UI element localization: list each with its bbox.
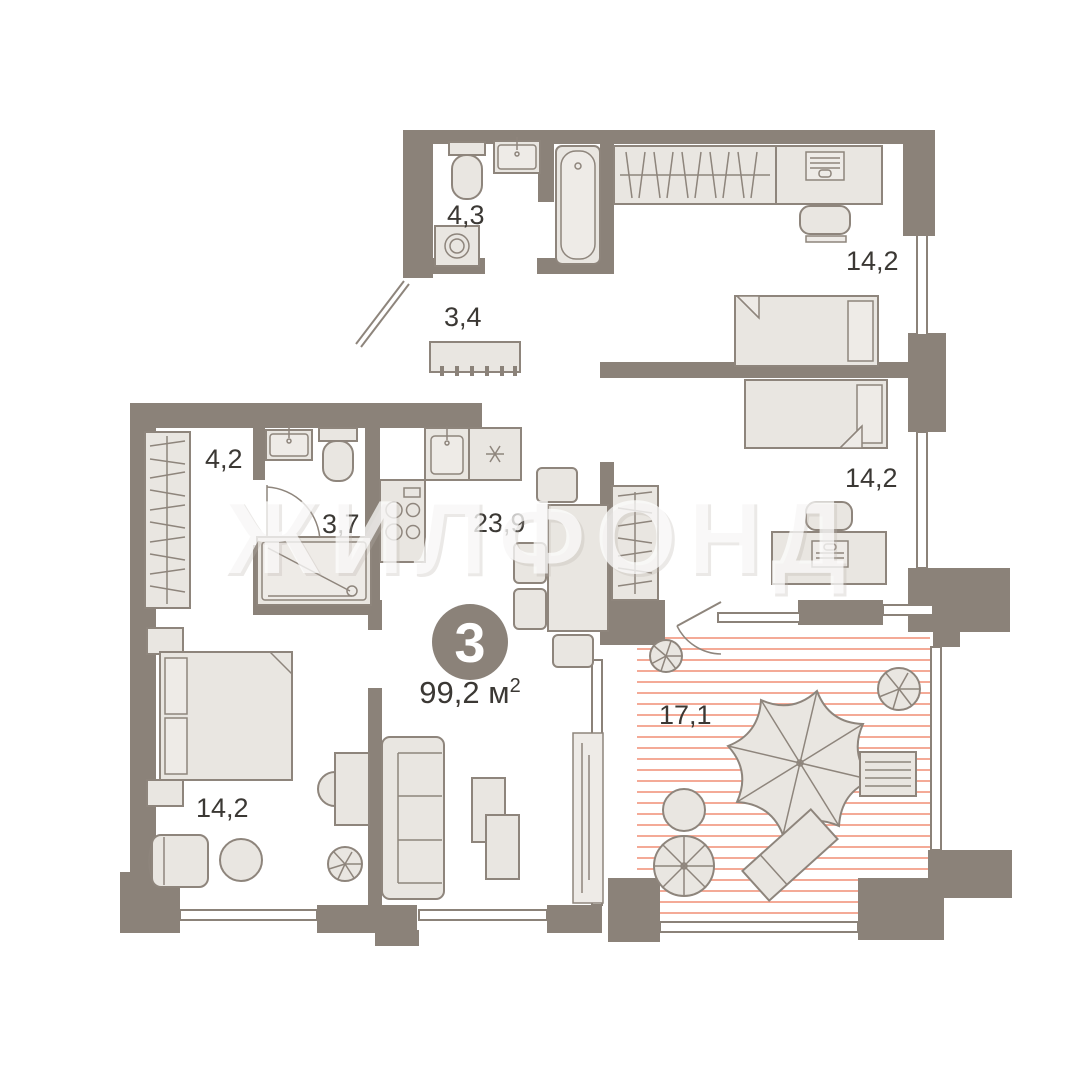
- toilet-icon: [319, 428, 357, 441]
- room-label-hallway: 3,4: [444, 302, 482, 332]
- room-label-terrace: 17,1: [659, 700, 712, 730]
- sofa-icon: [382, 737, 444, 899]
- room-label-bedroom-top: 14,2: [846, 246, 899, 276]
- plant-icon: [328, 847, 362, 881]
- bed-icon: [735, 296, 878, 366]
- terrace-table-icon: [860, 752, 916, 796]
- desk-chair-icon: [800, 206, 850, 242]
- armchair-icon: [149, 835, 208, 887]
- toilet-icon: [449, 142, 485, 155]
- entrance-door-icon: [356, 281, 409, 347]
- floor-plan-page: 4,3 3,4 14,2 14,2 4,2 3,7 23,9 14,2 17,1…: [0, 0, 1080, 1080]
- window-terrace-bottom: [660, 922, 858, 932]
- computer-icon: [806, 152, 844, 180]
- wardrobe-hall-icon: [145, 432, 190, 608]
- bathtub-icon: [556, 146, 600, 264]
- plant-icon: [650, 640, 682, 672]
- window-master-bedroom: [180, 910, 317, 920]
- desk-icon: [335, 753, 369, 825]
- nightstand-icon: [147, 780, 183, 806]
- glazing-bedroom-terrace: [718, 613, 800, 622]
- window-terrace-right: [931, 647, 941, 850]
- washing-machine-icon: [435, 226, 479, 266]
- window-living: [419, 910, 547, 920]
- rooms-count-badge: 3 99,2 м2: [419, 604, 520, 710]
- master-bedroom-furniture: [147, 628, 369, 887]
- window-terrace-top: [883, 605, 933, 615]
- fridge-icon: [469, 428, 521, 480]
- room-label-wardrobe-hall: 4,2: [205, 444, 243, 474]
- round-table-icon: [663, 789, 705, 831]
- window-bedroom-top: [917, 235, 927, 335]
- plant-large-icon: [654, 836, 714, 896]
- watermark: ЖИЛФОНД ЖИЛФОНД: [224, 480, 859, 599]
- terrace-door-icon: [677, 602, 721, 654]
- coffee-table-icon: [486, 815, 519, 879]
- plant-icon: [878, 668, 920, 710]
- double-bed-icon: [160, 652, 292, 780]
- total-area: 99,2 м2: [419, 675, 520, 710]
- floor-plan: 4,3 3,4 14,2 14,2 4,2 3,7 23,9 14,2 17,1…: [0, 0, 1080, 1080]
- room-label-bathroom-small: 4,3: [447, 200, 485, 230]
- nightstand-icon: [147, 628, 183, 654]
- bedroom-top-furniture: [614, 146, 882, 366]
- radiator-icon: [573, 733, 603, 903]
- bed-icon: [745, 380, 887, 448]
- svg-text:ЖИЛФОНД: ЖИЛФОНД: [224, 480, 856, 596]
- side-table-icon: [220, 839, 262, 881]
- room-label-bedroom-master: 14,2: [196, 793, 249, 823]
- coat-rack-icon: [430, 342, 520, 376]
- wardrobe-icon: [614, 146, 776, 204]
- window-bedroom-middle: [917, 432, 927, 568]
- rooms-count: 3: [454, 611, 485, 674]
- chair-icon: [318, 772, 335, 806]
